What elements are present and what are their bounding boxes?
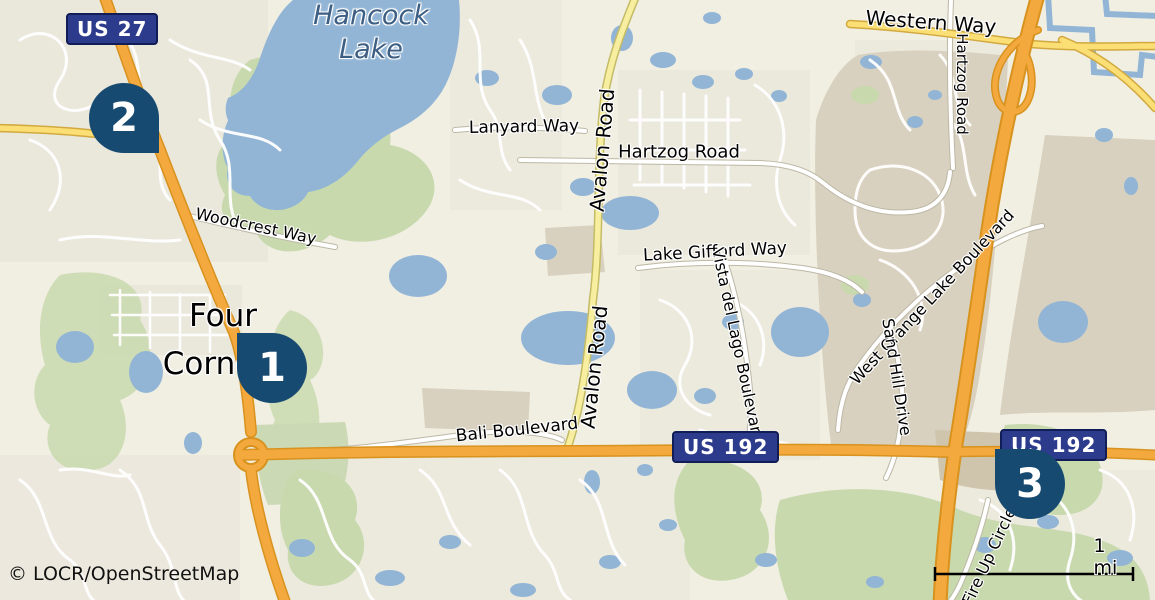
marker-1-number: 1 xyxy=(258,348,286,388)
road-us192 xyxy=(240,450,952,455)
scale-bar-label: 1 mi xyxy=(1094,535,1135,579)
hartzog-road-center-label: Hartzog Road xyxy=(618,142,740,163)
map-marker-2[interactable]: 2 xyxy=(89,83,159,153)
marker-2-number: 2 xyxy=(110,98,138,138)
marker-3-number: 3 xyxy=(1016,464,1044,504)
us27-shield: US 27 xyxy=(66,13,158,45)
us192-shield-center: US 192 xyxy=(672,431,779,463)
map-marker-3[interactable]: 3 xyxy=(995,449,1065,519)
lanyard-way-label: Lanyard Way xyxy=(469,116,580,138)
map-viewport[interactable]: Hancock Lake Four Corners Western Way Ha… xyxy=(0,0,1155,600)
hartzog-road-top-label: Hartzog Road xyxy=(953,33,971,135)
map-marker-1[interactable]: 1 xyxy=(237,333,307,403)
map-attribution: © LOCR/OpenStreetMap xyxy=(8,563,239,585)
hancock-lake-label: Hancock Lake xyxy=(313,0,429,67)
